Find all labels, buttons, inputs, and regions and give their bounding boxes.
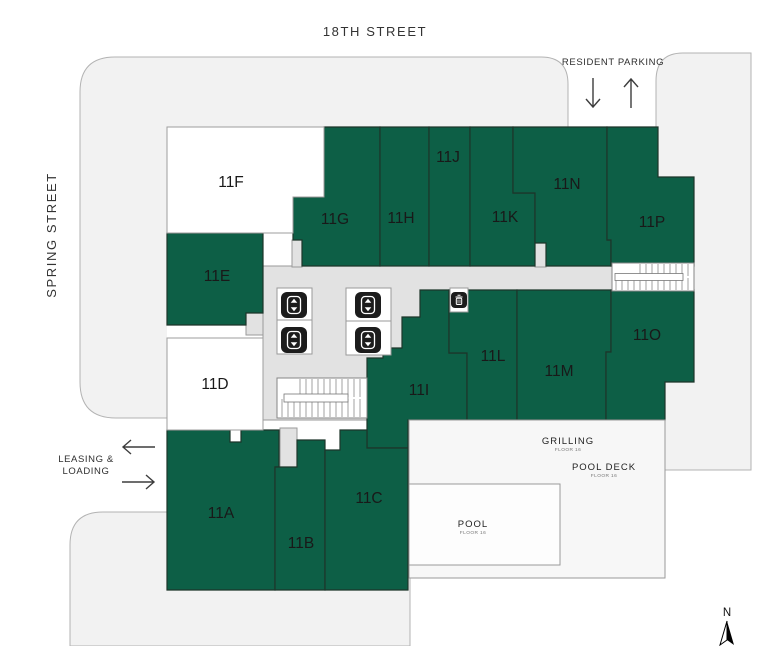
street-label-18th: 18TH STREET: [323, 24, 427, 39]
trash-chute-icon: [451, 292, 467, 308]
unit-11j[interactable]: [429, 127, 470, 266]
pool-label: POOL: [458, 519, 488, 530]
unit-label-11e: 11E: [204, 268, 230, 285]
unit-label-11i: 11I: [409, 382, 429, 399]
unit-label-11p: 11P: [639, 214, 665, 231]
corridor-pocket: [280, 428, 297, 467]
compass-north-icon: N: [720, 607, 734, 645]
unit-label-11l: 11L: [481, 348, 506, 365]
unit-label-11b: 11B: [288, 535, 314, 552]
leasing-loading-label-line2: LOADING: [63, 466, 110, 477]
pool-deck-label: POOL DECK: [572, 462, 636, 473]
unit-label-11n: 11N: [553, 176, 580, 193]
leasing-loading-label-line1: LEASING &: [58, 454, 114, 465]
corridor-tab-11n: [535, 243, 546, 267]
unit-label-11j: 11J: [436, 149, 460, 166]
unit-label-11h: 11H: [387, 210, 414, 227]
svg-text:N: N: [723, 607, 731, 619]
elevator-icon: [355, 292, 381, 318]
resident-parking-label: RESIDENT PARKING: [562, 57, 664, 68]
unit-label-11a: 11A: [208, 505, 235, 522]
unit-label-11k: 11K: [492, 209, 519, 226]
elevator-icon: [281, 327, 307, 353]
unit-label-11f: 11F: [218, 174, 244, 191]
grilling-caption: FLOOR 16: [555, 447, 581, 453]
unit-11h[interactable]: [380, 127, 429, 266]
elevator-icon: [355, 327, 381, 353]
corridor-tab-left: [246, 313, 263, 335]
corridor-tab-11g: [292, 240, 302, 267]
loading-right-arrow-icon: [122, 475, 154, 489]
unit-label-11g: 11G: [321, 211, 349, 228]
unit-11c[interactable]: [325, 430, 408, 590]
unit-label-11c: 11C: [355, 490, 382, 507]
unit-label-11m: 11M: [544, 363, 573, 380]
elevator-icon: [281, 292, 307, 318]
pool-deck-caption: FLOOR 16: [591, 473, 617, 479]
street-label-spring: SPRING STREET: [44, 172, 59, 298]
unit-label-11d: 11D: [201, 376, 228, 393]
parking-in-arrow-icon: [586, 78, 600, 107]
staircase-bottom: [277, 378, 367, 418]
unit-11m[interactable]: [517, 290, 611, 420]
floorplan-map: 18TH STREET SPRING STREET RESIDENT PARKI…: [0, 0, 760, 646]
unit-label-11o: 11O: [633, 327, 661, 344]
grilling-label: GRILLING: [542, 436, 594, 447]
staircase-right: [612, 263, 694, 291]
loading-left-arrow-icon: [123, 440, 155, 454]
pool-caption: FLOOR 16: [460, 530, 486, 536]
parking-out-arrow-icon: [624, 79, 638, 108]
